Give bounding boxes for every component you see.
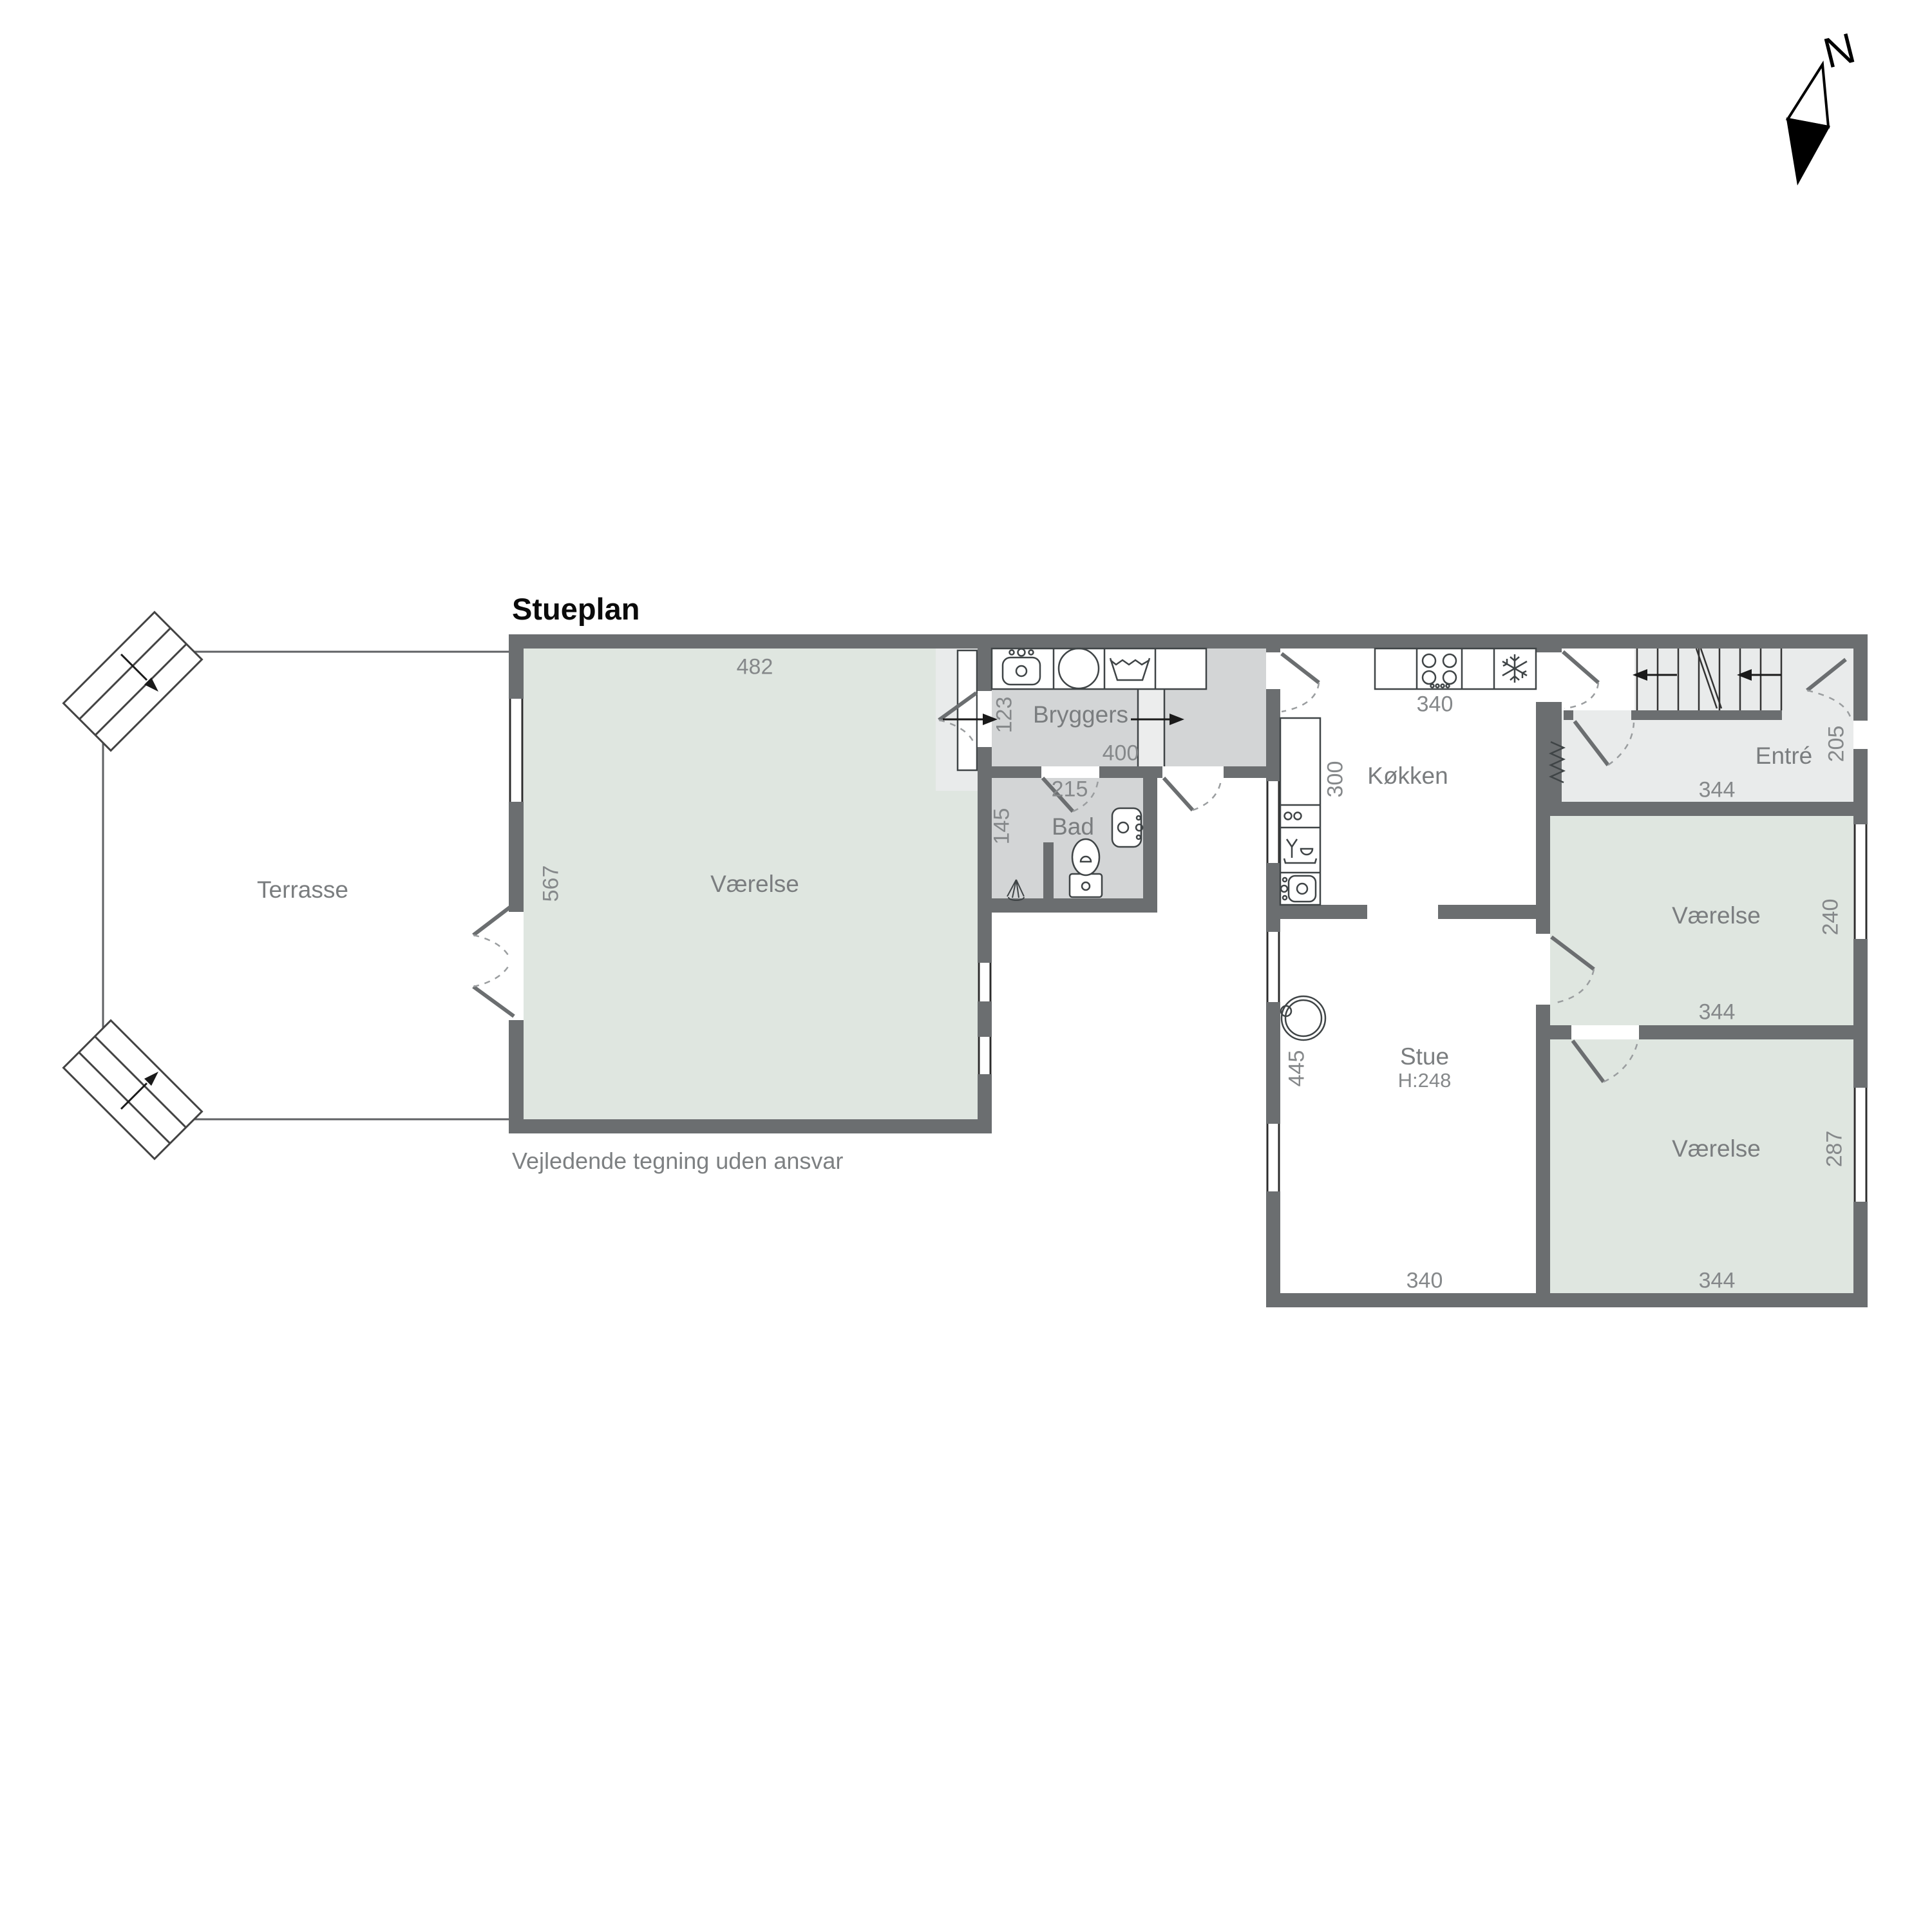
dim-bad-top: 215: [1052, 777, 1088, 802]
north-arrow-icon: [1788, 64, 1828, 182]
floorplan-canvas: Stueplan Vejledende tegning uden ansvar …: [0, 0, 1932, 1932]
room-label-vaerelse-se: Værelse: [1672, 1135, 1761, 1162]
room-label-entre: Entré: [1756, 743, 1812, 770]
door-leaf: [473, 904, 514, 935]
door-arc: [1282, 683, 1319, 712]
window: [978, 1037, 992, 1074]
room-label-bad: Bad: [1052, 813, 1094, 840]
wood-stove-icon: [1281, 996, 1325, 1040]
window: [1266, 932, 1280, 1002]
dim-bryggers-side: 123: [992, 697, 1018, 734]
dim-koekken-top: 340: [1417, 692, 1454, 717]
window: [978, 963, 992, 1001]
door-leaf: [1164, 778, 1193, 810]
door-gap: [1536, 652, 1562, 702]
door-arc: [473, 962, 511, 987]
terrace-steps-bottom: [64, 1021, 202, 1159]
bathroom-sink-icon: [1112, 808, 1142, 847]
floorplan-drawing: [0, 0, 1932, 1932]
dim-koekken-side: 300: [1323, 761, 1349, 798]
door-arc: [473, 935, 511, 960]
toilet-icon: [1070, 839, 1102, 897]
room-label-koekken: Køkken: [1367, 762, 1448, 790]
dim-entre-bottom: 344: [1699, 778, 1736, 803]
door-arc: [1193, 781, 1221, 810]
room-label-terrasse: Terrasse: [257, 876, 348, 904]
dim-vaerelse-se-bottom: 344: [1699, 1269, 1736, 1294]
dim-vaerelse-se-side: 287: [1823, 1131, 1848, 1168]
room-label-bryggers: Bryggers: [1033, 701, 1128, 728]
terrace-door-gap: [509, 912, 524, 1020]
dim-vaerelse-left-top: 482: [737, 655, 773, 680]
disclaimer-text: Vejledende tegning uden ansvar: [512, 1148, 843, 1175]
door-gap: [1266, 652, 1280, 689]
kitchen-top-counter: [1375, 649, 1536, 689]
dim-entre-side: 205: [1824, 726, 1850, 762]
dim-vaerelse-left-side: 567: [539, 866, 564, 902]
window: [1266, 1124, 1280, 1191]
dim-bryggers-bottom: 400: [1103, 741, 1139, 766]
front-door-gap: [1853, 721, 1868, 749]
room-label-stue: Stue: [1400, 1043, 1449, 1070]
door-leaf: [473, 987, 514, 1016]
window: [1853, 1088, 1868, 1202]
room-fills: [524, 649, 1853, 1293]
room-label-vaerelse-left: Værelse: [710, 871, 799, 898]
window: [1266, 781, 1280, 863]
kitchen-left-counter: [1280, 718, 1320, 905]
window: [509, 699, 524, 802]
ceiling-height-note: H:248: [1398, 1069, 1452, 1092]
window: [1853, 824, 1868, 939]
dim-vaerelse-ne-side: 240: [1819, 899, 1844, 936]
dim-vaerelse-ne-bottom: 344: [1699, 1000, 1736, 1025]
plan-title: Stueplan: [512, 591, 639, 627]
dim-stue-side: 445: [1285, 1050, 1310, 1087]
dim-bad-side: 145: [990, 808, 1015, 845]
door-leaf: [1282, 654, 1319, 683]
room-label-vaerelse-ne: Værelse: [1672, 902, 1761, 929]
dim-stue-bottom: 340: [1406, 1269, 1443, 1294]
terrace-steps-top: [64, 612, 202, 751]
